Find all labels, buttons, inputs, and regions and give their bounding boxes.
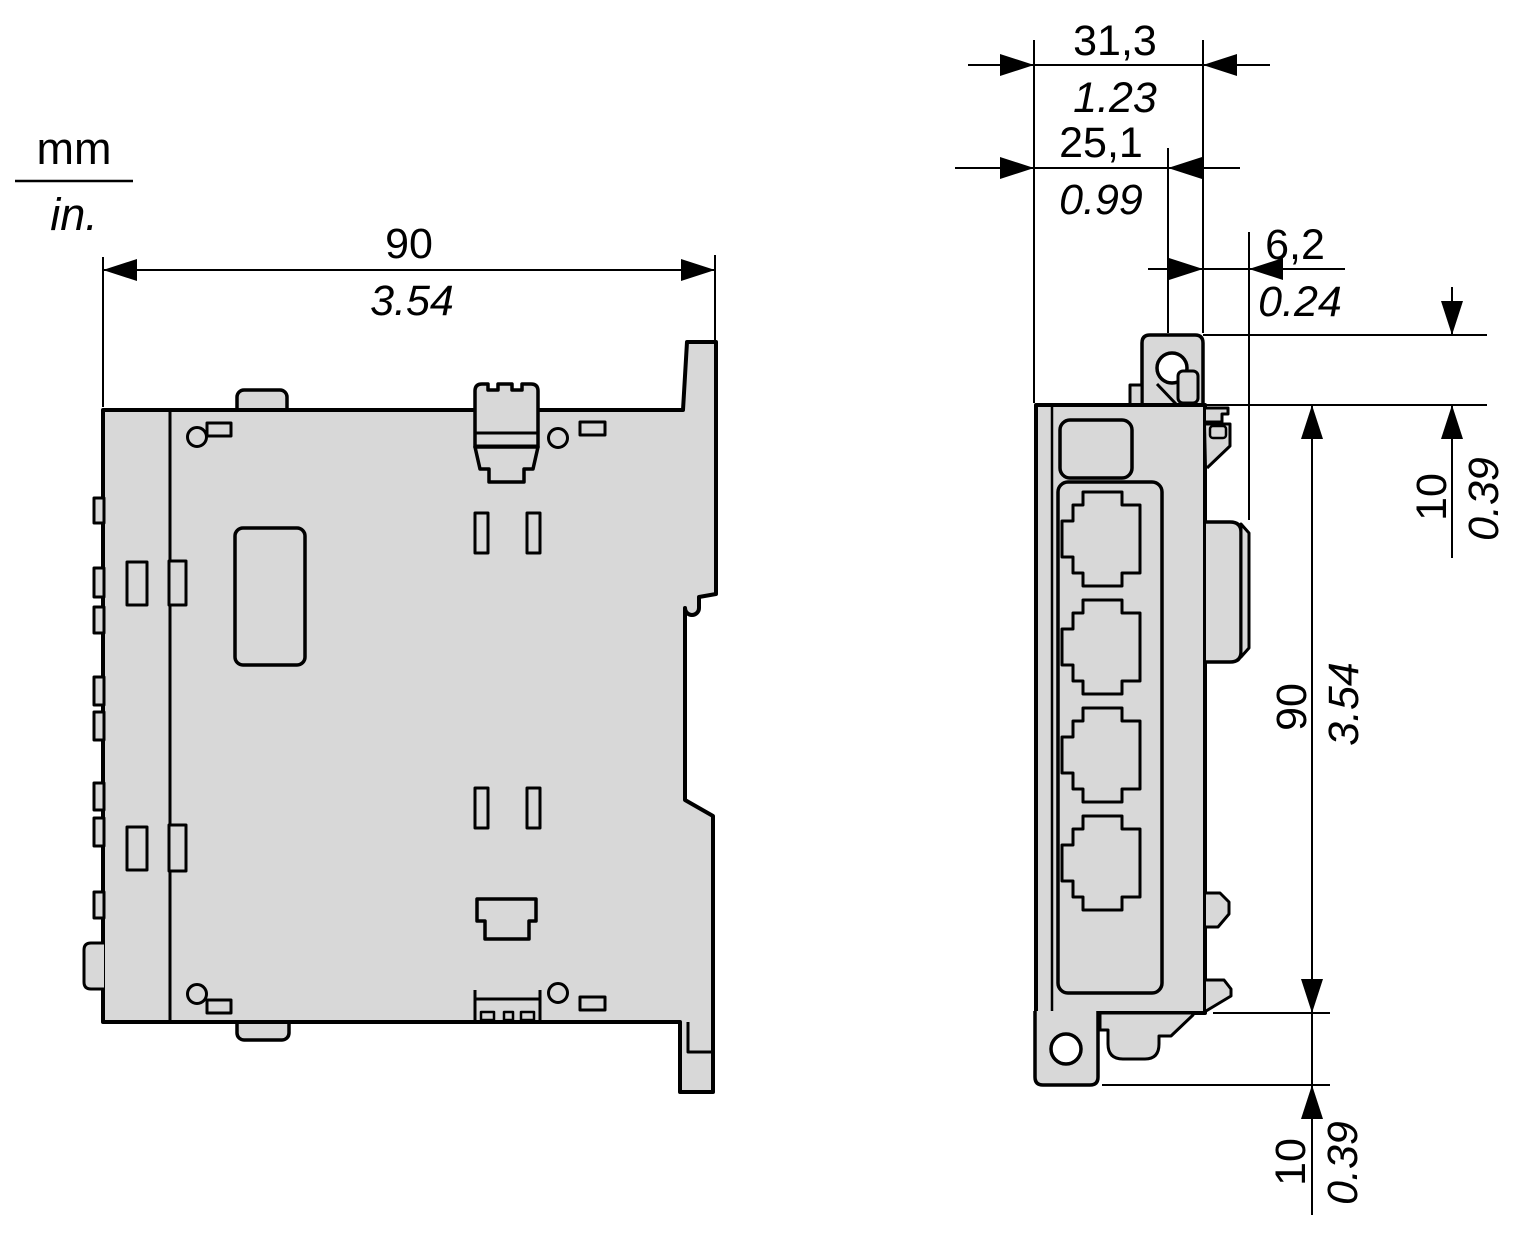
divider-notch <box>169 561 186 605</box>
arrowhead <box>1000 54 1034 76</box>
dim-top-tab-in: 0.39 <box>1460 457 1508 541</box>
dim-side-width-mm: 90 <box>385 220 433 268</box>
rounded-edge-tab <box>84 943 104 989</box>
screw-boss <box>549 984 568 1003</box>
edge-tab <box>94 892 104 918</box>
dim-din-offset: 6,2 0.24 <box>1148 221 1345 326</box>
ear-step <box>1130 385 1142 405</box>
arrowhead <box>1169 258 1203 280</box>
dim-hole-offset-mm: 25,1 <box>1059 119 1143 167</box>
dim-side-width: 90 3.54 <box>103 220 715 407</box>
vent-slot <box>527 788 540 828</box>
screw-boss <box>549 429 568 448</box>
dim-bottom-tab-in: 0.39 <box>1319 1121 1367 1205</box>
bracket-foot <box>481 1012 494 1020</box>
side-latch-tab-bottom <box>1206 980 1231 1011</box>
arrowhead <box>1000 157 1034 179</box>
bracket-foot <box>504 1012 513 1020</box>
screw-slot <box>580 997 605 1010</box>
din-rail-flange <box>1241 524 1249 657</box>
ear-latch <box>1178 371 1198 403</box>
terminal-connector-top <box>475 384 538 482</box>
arrowhead <box>1168 157 1202 179</box>
dim-overall-width-in: 1.23 <box>1073 74 1157 122</box>
side-latch-tab-upper <box>1206 408 1228 422</box>
screw-boss <box>188 428 207 447</box>
jack-outline-recess <box>477 899 536 939</box>
side-view-body <box>103 342 716 1092</box>
arrowhead <box>1441 301 1463 335</box>
edge-tab <box>94 712 104 740</box>
label-recess <box>235 528 305 665</box>
vent-slot <box>475 788 488 828</box>
side-slot <box>127 562 147 605</box>
side-view: 90 3.54 <box>84 220 716 1092</box>
edge-tab <box>94 818 104 846</box>
arrowhead <box>1203 54 1237 76</box>
units-mm-label: mm <box>37 123 112 174</box>
dim-din-offset-in: 0.24 <box>1258 278 1342 326</box>
edge-tab <box>94 568 104 597</box>
rj45-port-1 <box>1062 492 1140 586</box>
dim-hole-offset: 25,1 0.99 <box>955 119 1240 224</box>
arrowhead <box>1301 405 1323 439</box>
dim-height: 90 3.54 10 0.39 <box>1267 405 1368 1215</box>
vent-slot <box>475 513 488 553</box>
divider-notch <box>169 825 186 871</box>
dim-top-tab: 10 0.39 <box>1408 287 1508 558</box>
screw-slot <box>207 1000 231 1013</box>
edge-tab <box>94 498 104 523</box>
dim-side-width-in: 3.54 <box>370 277 454 325</box>
dim-hole-offset-in: 0.99 <box>1059 176 1143 224</box>
reset-button <box>1060 420 1132 478</box>
dimension-drawing-page: mm in. <box>0 0 1530 1236</box>
units-in-label: in. <box>50 189 98 240</box>
screw-slot <box>580 422 605 435</box>
side-latch-tab-lower <box>1206 893 1229 927</box>
side-slot <box>127 827 147 870</box>
rj45-port-4 <box>1062 816 1140 910</box>
arrowhead-left <box>103 259 137 281</box>
connector-upper <box>475 384 538 447</box>
mechanical-dimension-drawing: mm in. <box>0 0 1530 1236</box>
front-view: 31,3 1.23 25,1 0.99 6,2 0.24 <box>955 17 1508 1215</box>
rj45-port-3 <box>1062 708 1140 802</box>
dim-height-in: 3.54 <box>1320 662 1368 746</box>
rj45-port-2 <box>1062 600 1140 694</box>
vent-slot <box>527 513 540 553</box>
mounting-hole-bottom <box>1051 1034 1081 1064</box>
edge-tab <box>94 783 104 810</box>
arrowhead <box>1441 405 1463 439</box>
bracket-foot <box>521 1012 534 1020</box>
dim-top-tab-mm: 10 <box>1408 473 1456 521</box>
din-rail-block <box>1206 522 1241 662</box>
dim-overall-width: 31,3 1.23 <box>968 17 1270 122</box>
units-legend: mm in. <box>15 123 133 240</box>
edge-tab <box>94 607 104 633</box>
screw-boss <box>188 985 207 1004</box>
arrowhead <box>1301 1085 1323 1119</box>
dim-bottom-tab-mm: 10 <box>1267 1138 1315 1186</box>
edge-tab <box>94 677 104 705</box>
dim-height-mm: 90 <box>1268 683 1316 731</box>
dim-overall-width-mm: 31,3 <box>1073 17 1157 65</box>
screw-slot <box>207 423 231 436</box>
arrowhead-right <box>681 259 715 281</box>
arrowhead <box>1301 979 1323 1013</box>
dim-din-offset-mm: 6,2 <box>1265 221 1325 269</box>
bottom-latch <box>1100 1013 1193 1059</box>
side-latch-detail <box>1210 426 1226 438</box>
